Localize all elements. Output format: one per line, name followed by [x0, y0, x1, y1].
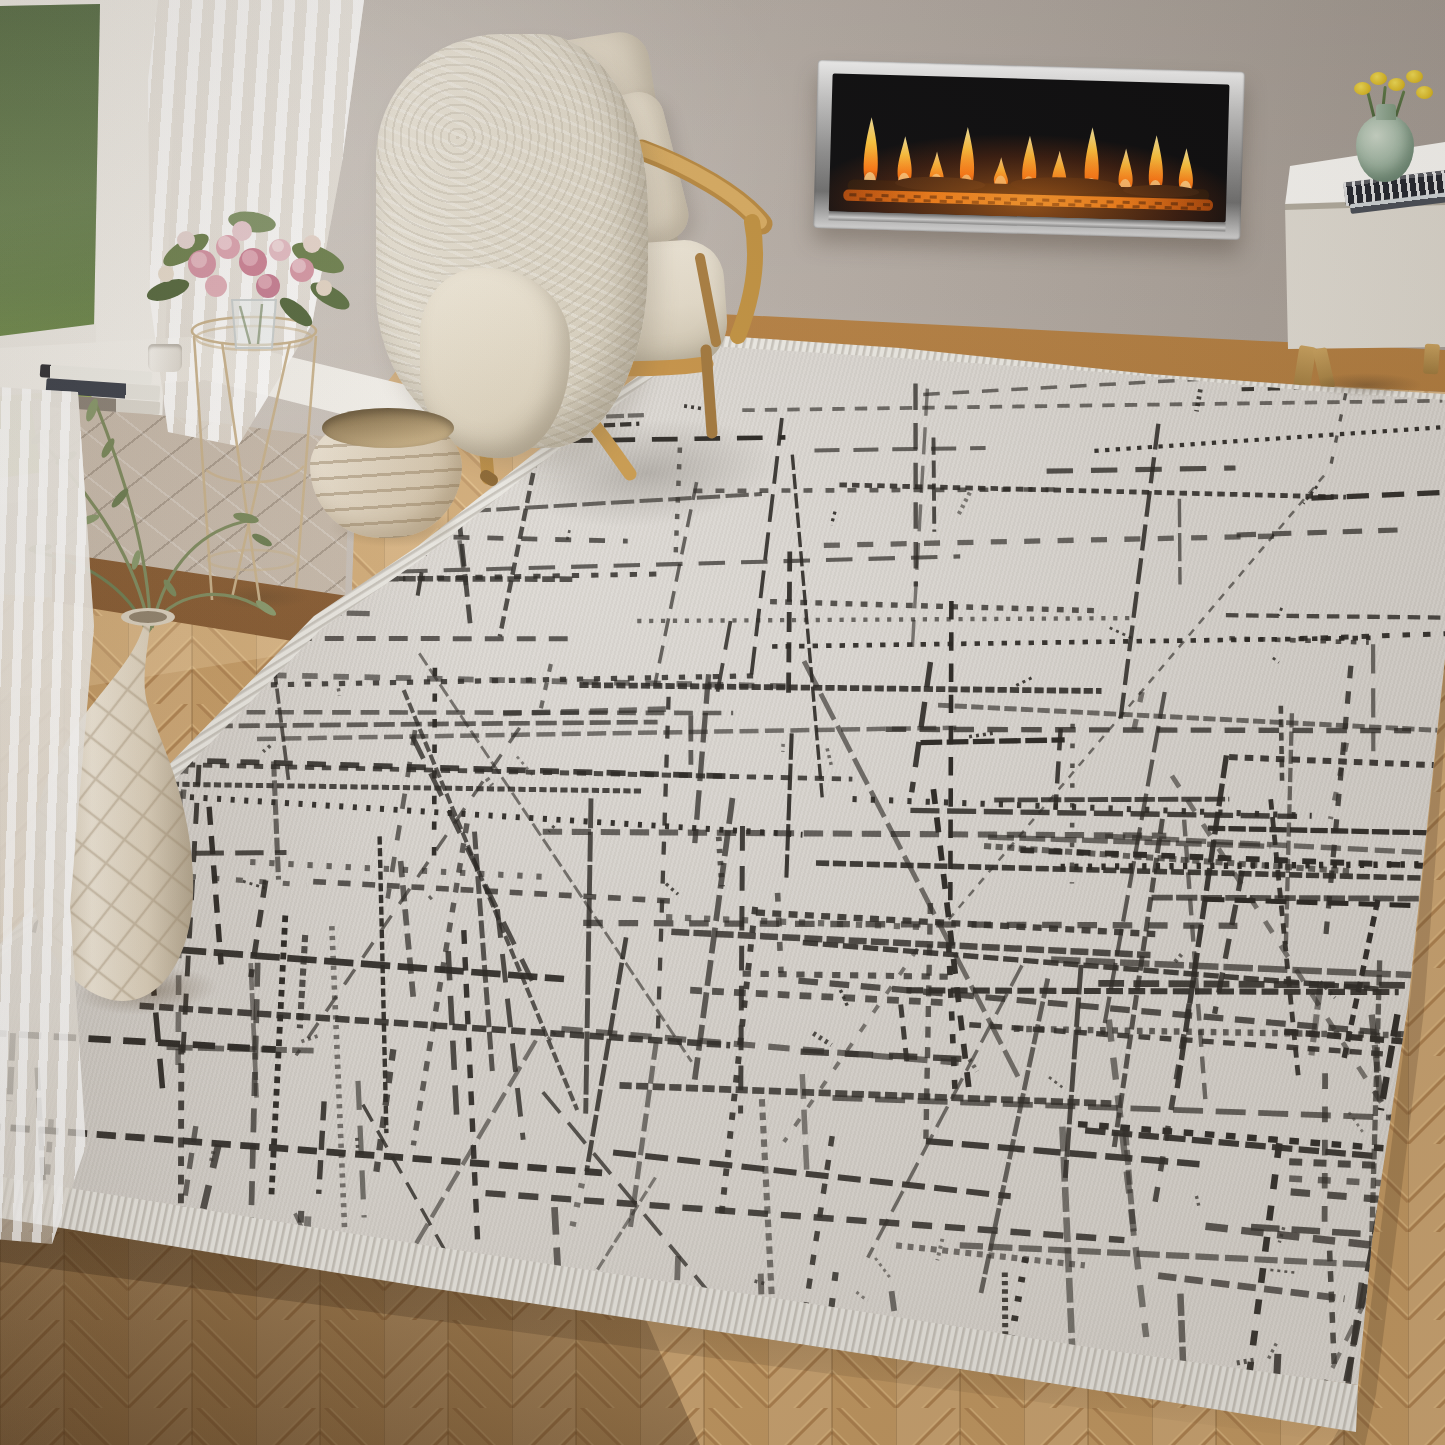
floor-vase-and-plant — [0, 0, 1445, 1445]
living-room-scene — [0, 0, 1445, 1445]
woven-basket-opening — [322, 408, 454, 448]
